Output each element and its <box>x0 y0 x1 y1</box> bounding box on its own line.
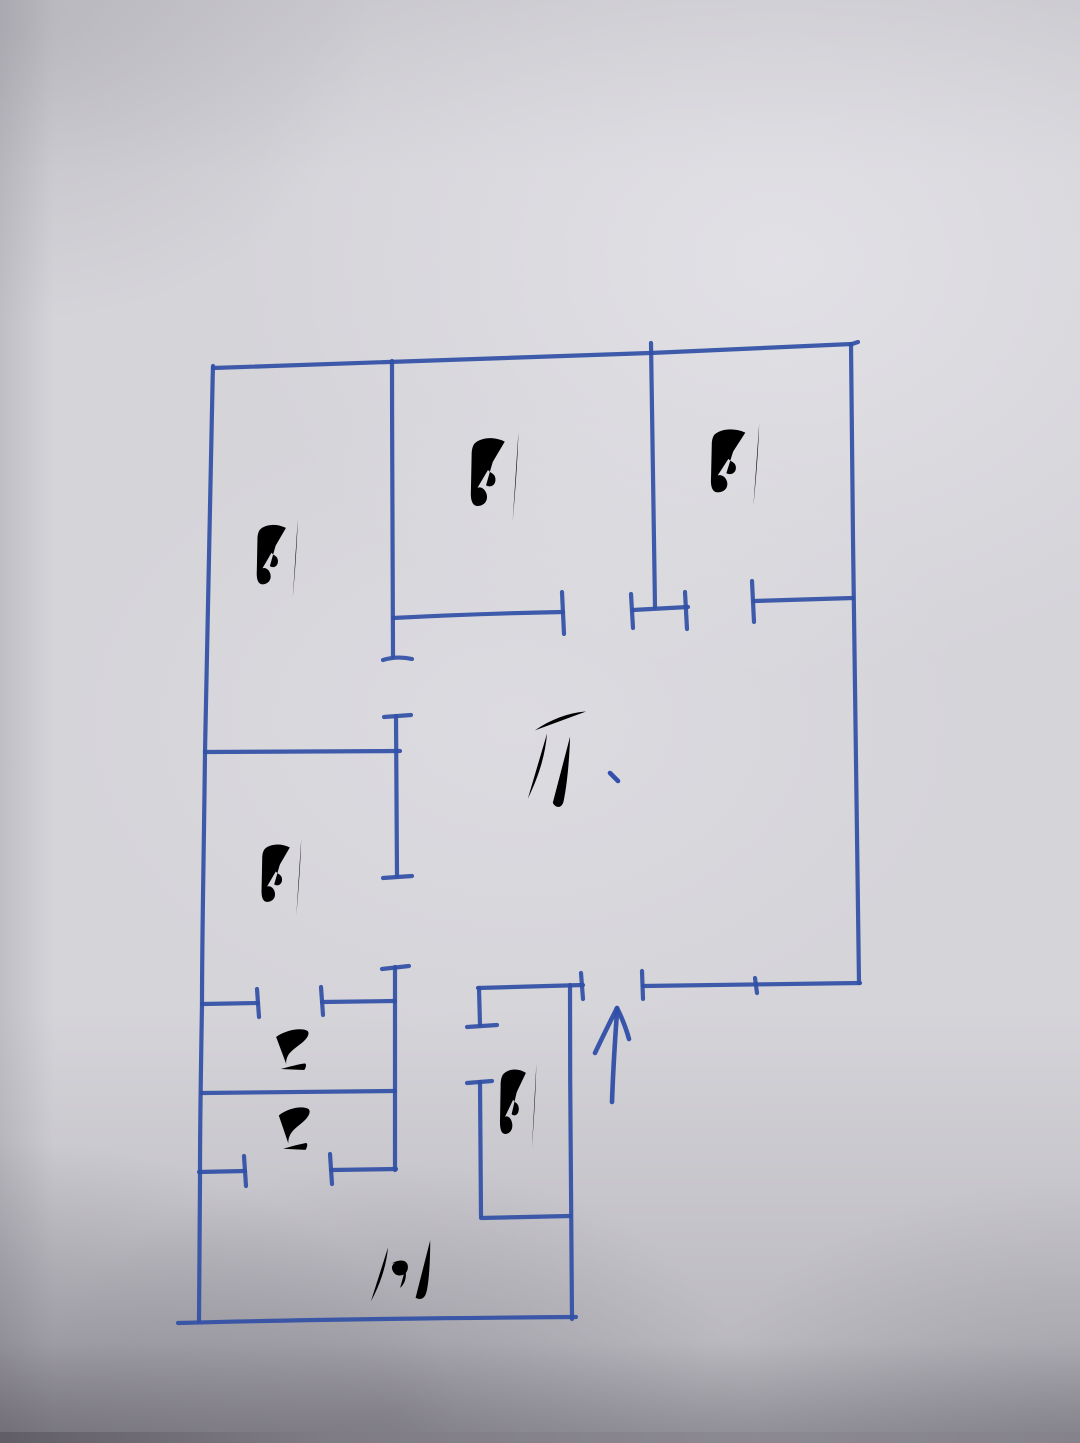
door-jamb-tick <box>383 876 412 878</box>
wall-divider-bedroom3 <box>651 343 655 607</box>
wall-bathroom2-bottom-right <box>331 1169 396 1170</box>
wall-bathroom1-top-left <box>202 1003 258 1004</box>
door-jamb-tick <box>257 989 259 1017</box>
door-jamb-tick <box>631 594 633 628</box>
wall-entry-bedroom-left-upper <box>479 988 480 1025</box>
room-label-bathroom-lower-glyph <box>279 1107 310 1149</box>
photo-bottom-edge-shadow <box>0 1432 1080 1443</box>
door-jamb-tick <box>642 971 643 999</box>
room-label-bathroom-upper-glyph <box>276 1029 308 1070</box>
wall-bathroom2-bottom-left <box>199 1171 245 1172</box>
room-label-living-room-glyph <box>528 711 618 806</box>
room-label-kitchen-glyph <box>371 1233 436 1301</box>
room-label-bedroom-top-right-glyph <box>711 424 772 507</box>
door-jamb-tick <box>581 973 583 999</box>
door-jamb-tick <box>685 592 687 629</box>
wall-outer-top <box>213 342 858 368</box>
wall-kitchen-bottom <box>178 1317 576 1323</box>
wall-entry-bedroom-left-lower <box>480 1082 481 1216</box>
wall-entry-bedroom-right <box>570 985 572 1319</box>
wall-bathroom-middle <box>202 1091 395 1093</box>
floor-plan-drawing <box>0 0 1080 1443</box>
wall-bathroom1-top-right <box>322 1001 395 1002</box>
wall-bedroom3-bottom <box>754 598 853 601</box>
wall-entry-bedroom-top <box>478 985 583 988</box>
wall-jamb-segment <box>633 607 688 610</box>
paper-photo: 卧 卧 卧 卧 卧 厅 卫 卫 厨 <box>0 0 1080 1443</box>
wall-entry-bedroom-bottom <box>481 1216 570 1218</box>
floor-plan-walls <box>178 342 860 1323</box>
door-jamb-tick <box>752 581 754 622</box>
door-jamb-tick <box>244 1156 246 1186</box>
room-label-bedroom-entry-glyph <box>500 1064 546 1149</box>
wall-outer-right <box>851 344 859 983</box>
entrance-arrow-head <box>617 1008 629 1039</box>
door-jamb-tick <box>383 658 412 660</box>
wall-junction-nub <box>755 978 757 993</box>
room-label-bedroom-middle-left-glyph <box>262 839 312 914</box>
wall-outer-left <box>199 366 213 1321</box>
wall-bedroom2-bottom <box>393 612 563 618</box>
wall-bedroom1-bottom <box>205 751 400 752</box>
entrance-arrow-icon <box>595 1008 629 1102</box>
door-jamb-tick <box>382 966 409 969</box>
door-jamb-tick <box>562 592 564 634</box>
room-label-bedroom-top-middle-glyph <box>471 432 531 521</box>
entrance-arrow-shaft <box>612 1012 617 1102</box>
living-room-dot <box>610 773 618 781</box>
wall-living-bottom <box>643 983 860 986</box>
room-label-bedroom-top-left-glyph <box>257 519 309 597</box>
door-jamb-tick <box>384 715 411 717</box>
wall-divider-bedroom1 <box>392 361 393 656</box>
wall-hallway-upper <box>396 716 397 876</box>
door-jamb-tick <box>467 1025 497 1027</box>
